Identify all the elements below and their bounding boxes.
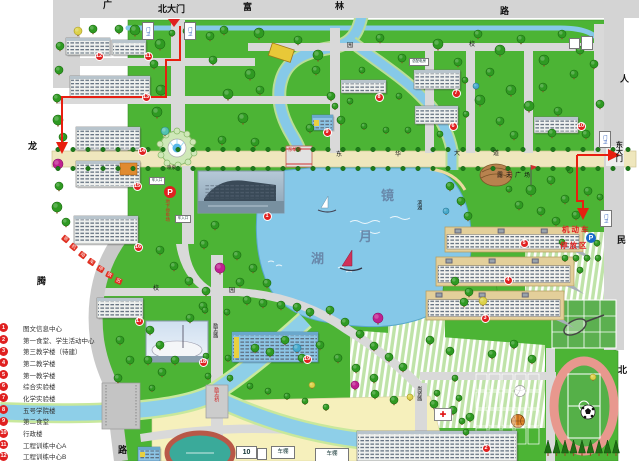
legend-badge: 8 bbox=[0, 405, 8, 414]
legend-item-11: 11工程训练中心A bbox=[0, 439, 158, 451]
box-stand-10: 10 bbox=[236, 446, 257, 459]
legend-item-10: 10行政楼 bbox=[0, 427, 158, 439]
legend-label: 五号学院楼 bbox=[23, 405, 56, 415]
p-underground: P bbox=[164, 186, 176, 198]
box-guard-north-e: 门卫 bbox=[184, 22, 196, 40]
legend-label: 图文信息中心 bbox=[23, 323, 62, 333]
basketball-icon bbox=[512, 415, 525, 428]
legend-label: 工程训练中心A bbox=[23, 440, 66, 450]
badge-8: 8 bbox=[375, 93, 384, 102]
legend-badge: 11 bbox=[0, 440, 8, 449]
badge-2: 2 bbox=[482, 444, 491, 453]
badge-19: 19 bbox=[303, 355, 312, 364]
building-2 bbox=[357, 431, 519, 461]
legend-badge: 2 bbox=[0, 335, 8, 344]
box-car-entry-2: 车入口 bbox=[175, 215, 191, 223]
building-16 bbox=[74, 216, 140, 246]
legend-item-6: 6综合实验楼 bbox=[0, 380, 158, 392]
box-corner-hut-2 bbox=[581, 36, 593, 50]
box-bike-shed-1: 车棚 bbox=[271, 446, 295, 459]
soccer-ball-icon bbox=[581, 405, 595, 419]
legend-item-4: 4第二教学楼 bbox=[0, 357, 158, 369]
badge-9: 9 bbox=[323, 128, 332, 137]
legend-label: 第一教学楼 bbox=[23, 370, 56, 380]
legend: 1图文信息中心2第一食堂、学生活动中心3第三教学楼（待建）4第二教学楼5第一教学… bbox=[0, 322, 158, 461]
legend-badge: 7 bbox=[0, 393, 8, 402]
building-15 bbox=[76, 161, 142, 189]
legend-item-9: 9第二食堂 bbox=[0, 416, 158, 428]
photo-library bbox=[198, 171, 284, 213]
legend-item-7: 7化学实验楼 bbox=[0, 392, 158, 404]
legend-label: 行政楼 bbox=[23, 428, 43, 438]
building-10 bbox=[534, 117, 580, 135]
legend-item-5: 5第一教学楼 bbox=[0, 369, 158, 381]
building-7 bbox=[414, 70, 462, 91]
legend-badge: 10 bbox=[0, 429, 8, 438]
building-11 bbox=[112, 40, 148, 57]
legend-badge: 3 bbox=[0, 347, 8, 356]
legend-badge: 4 bbox=[0, 358, 8, 367]
badge-10: 10 bbox=[577, 122, 586, 131]
box-corner-hut-1 bbox=[569, 38, 580, 49]
box-car-entry-1: 车入口 bbox=[149, 177, 165, 185]
legend-item-12: 12工程训练中心B bbox=[0, 451, 158, 461]
box-small-shed bbox=[257, 448, 267, 460]
badge-1: 1 bbox=[263, 212, 272, 221]
badge-11: 11 bbox=[144, 52, 153, 61]
clinic-box: ✚ bbox=[434, 408, 452, 421]
mini-track bbox=[167, 433, 233, 461]
legend-label: 工程训练中心B bbox=[23, 451, 66, 461]
legend-label: 第一食堂、学生活动中心 bbox=[23, 335, 95, 345]
legend-label: 第二教学楼 bbox=[23, 358, 56, 368]
p-motor: P bbox=[586, 233, 596, 243]
badge-3: 3 bbox=[481, 314, 490, 323]
badge-4: 4 bbox=[504, 276, 513, 285]
badge-15: 15 bbox=[133, 182, 142, 191]
box-power-house: 总配电房 bbox=[409, 58, 429, 66]
badge-5: 5 bbox=[520, 239, 529, 248]
badge-6: 6 bbox=[449, 122, 458, 131]
legend-item-3: 3第三教学楼（待建） bbox=[0, 345, 158, 357]
badge-18: 18 bbox=[199, 358, 208, 367]
legend-label: 化学实验楼 bbox=[23, 393, 56, 403]
box-guard-east-n: 门卫 bbox=[599, 131, 611, 148]
legend-label: 第三教学楼（待建） bbox=[23, 346, 82, 356]
badge-13: 13 bbox=[142, 93, 151, 102]
badge-14: 14 bbox=[138, 147, 147, 156]
box-guard-north-w: 门卫 bbox=[142, 22, 154, 40]
red-cross-icon: ✚ bbox=[440, 411, 447, 419]
box-bike-shed-2: 车棚 bbox=[315, 448, 349, 461]
legend-item-1: 1图文信息中心 bbox=[0, 322, 158, 334]
legend-label: 第二食堂 bbox=[23, 416, 49, 426]
building-12 bbox=[66, 38, 112, 57]
badge-7: 7 bbox=[452, 89, 461, 98]
legend-badge: 5 bbox=[0, 370, 8, 379]
legend-label: 综合实验楼 bbox=[23, 381, 56, 391]
legend-badge: 1 bbox=[0, 323, 8, 332]
box-guard-east-s: 门卫 bbox=[600, 210, 612, 227]
badge-16: 16 bbox=[134, 243, 143, 252]
volleyball-icon bbox=[515, 386, 526, 397]
north-gate-marker bbox=[168, 19, 180, 27]
badge-12: 12 bbox=[95, 52, 104, 61]
building-13 bbox=[70, 76, 152, 99]
legend-badge: 6 bbox=[0, 382, 8, 391]
legend-badge: 12 bbox=[0, 452, 8, 461]
legend-badge: 9 bbox=[0, 417, 8, 426]
legend-item-2: 2第一食堂、学生活动中心 bbox=[0, 334, 158, 346]
lizhi-bridge bbox=[206, 385, 228, 418]
campus-map: 1图文信息中心2第一食堂、学生活动中心3第三教学楼（待建）4第二教学楼5第一教学… bbox=[0, 0, 639, 461]
legend-item-8: 8五号学院楼 bbox=[0, 404, 158, 416]
